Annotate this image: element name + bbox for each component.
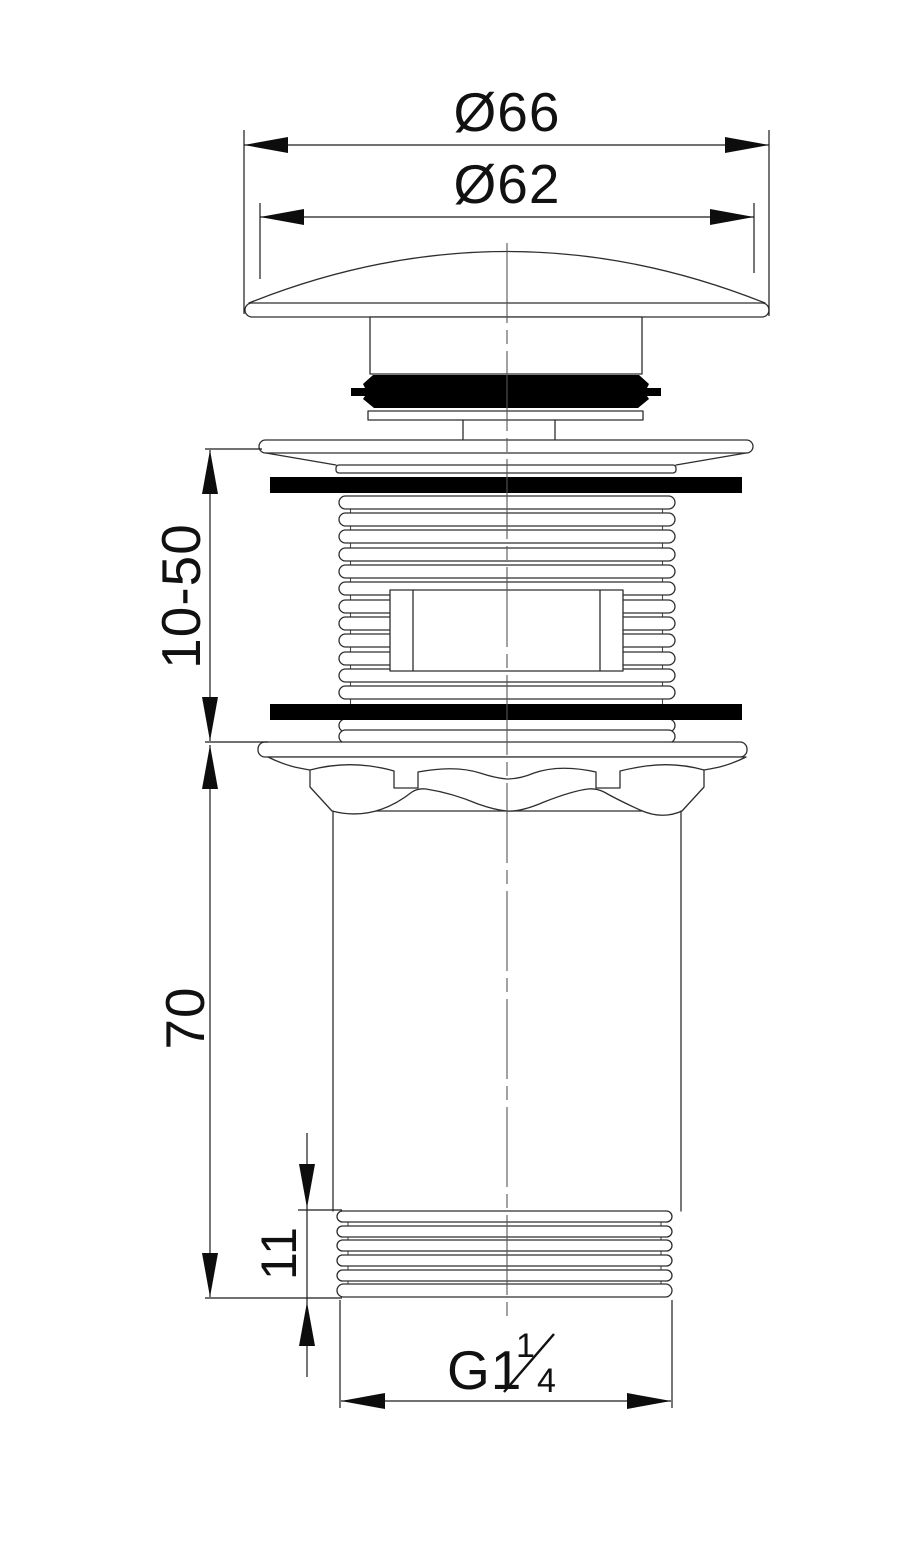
locknut-flange xyxy=(258,742,747,757)
lower-thread-last-ridge xyxy=(337,1284,672,1297)
arrowhead-top xyxy=(202,450,218,494)
flange-slant-right xyxy=(676,453,746,465)
flange-lip xyxy=(336,465,676,473)
arrowhead-left xyxy=(244,137,288,153)
dim-label-dia62: Ø62 xyxy=(454,153,561,215)
arrowhead-left xyxy=(341,1393,385,1409)
dim-label-dia66: Ø66 xyxy=(454,81,561,143)
cap-stem xyxy=(370,317,642,374)
arrowhead-right xyxy=(627,1393,671,1409)
body-flange xyxy=(259,440,753,473)
dim-body-length: 70 xyxy=(154,745,342,1298)
arrowhead-down xyxy=(299,1164,315,1208)
arrowhead-left xyxy=(260,209,304,225)
dim-thread-spec: G1 1 4 xyxy=(340,1300,672,1409)
dim-adjustment-range: 10-50 xyxy=(150,449,268,742)
flange-slant-left xyxy=(266,453,336,465)
thread-spec-main: G1 xyxy=(447,1339,522,1401)
seal-washer-plate xyxy=(368,411,643,420)
dim-label-10-50: 10-50 xyxy=(150,523,212,669)
arrowhead-right xyxy=(710,209,754,225)
dim-label-11: 11 xyxy=(251,1226,307,1280)
dim-lower-thread-length: 11 xyxy=(251,1133,342,1377)
drawing-svg: Ø66 Ø62 10-50 70 11 xyxy=(0,0,917,1555)
gasket-bottom xyxy=(270,704,742,720)
arrowhead-up xyxy=(299,1302,315,1346)
arrowhead-bottom xyxy=(202,697,218,741)
flange-top-bar xyxy=(259,440,753,453)
rubber-seal xyxy=(351,375,661,408)
technical-drawing-basin-waste: Ø66 Ø62 10-50 70 11 xyxy=(0,0,917,1555)
arrowhead-right xyxy=(725,137,769,153)
lower-thread-section xyxy=(337,1211,672,1297)
thread-spec-denominator: 4 xyxy=(537,1362,556,1400)
arrowhead-bottom xyxy=(202,1253,218,1297)
dim-label-70: 70 xyxy=(154,986,216,1049)
arrowhead-top xyxy=(202,745,218,789)
gasket-top xyxy=(270,477,742,493)
